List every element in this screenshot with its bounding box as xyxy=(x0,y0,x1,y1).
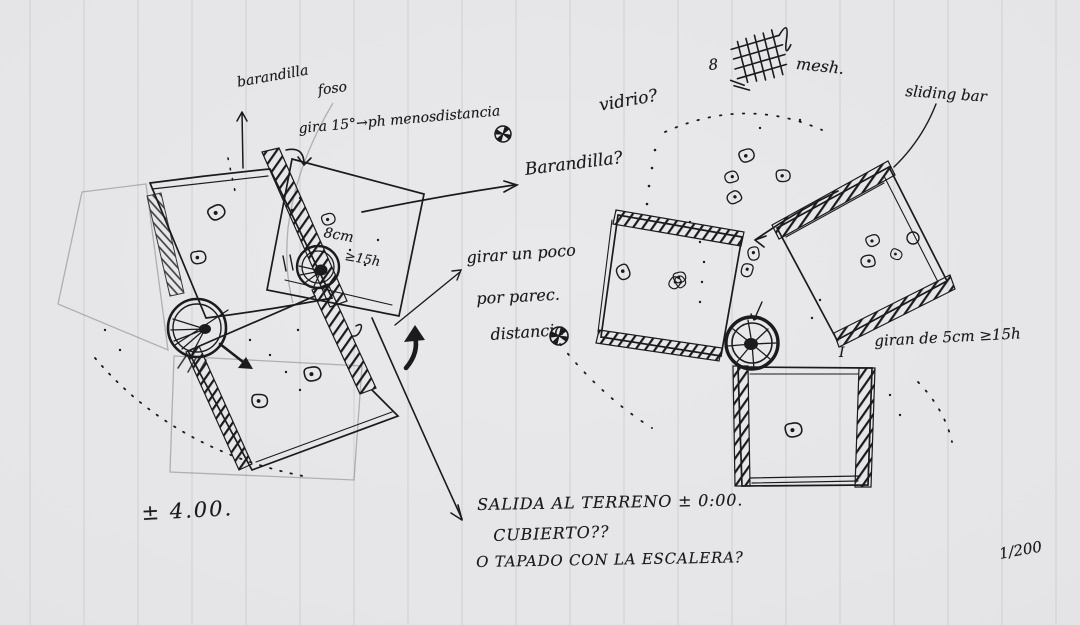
sketch-page: barandilla foso gira 15°→ph menosdistanc… xyxy=(0,0,1080,625)
up-arrow-icon xyxy=(404,325,425,368)
annotation-cubierto: CUBIERTO?? xyxy=(493,524,610,544)
annotation-i-mark: I xyxy=(839,346,845,360)
annotation-level: ± 4.00. xyxy=(141,498,234,524)
spiral-stair-icon xyxy=(726,302,778,369)
left-plan-cluster xyxy=(147,148,424,470)
annotation-girar-line2: por parec. xyxy=(476,287,560,307)
annotation-foso: foso xyxy=(317,80,348,98)
annotation-salida: SALIDA AL TERRENO ± 0:00. xyxy=(477,492,743,513)
annotation-mesh-count: 8 xyxy=(708,57,719,73)
right-plan-cluster xyxy=(596,148,955,487)
pinwheel-icon xyxy=(495,126,511,142)
annotation-mesh: mesh. xyxy=(795,56,845,77)
mesh-grid-icon xyxy=(721,26,799,94)
scatter-dots xyxy=(104,119,901,416)
